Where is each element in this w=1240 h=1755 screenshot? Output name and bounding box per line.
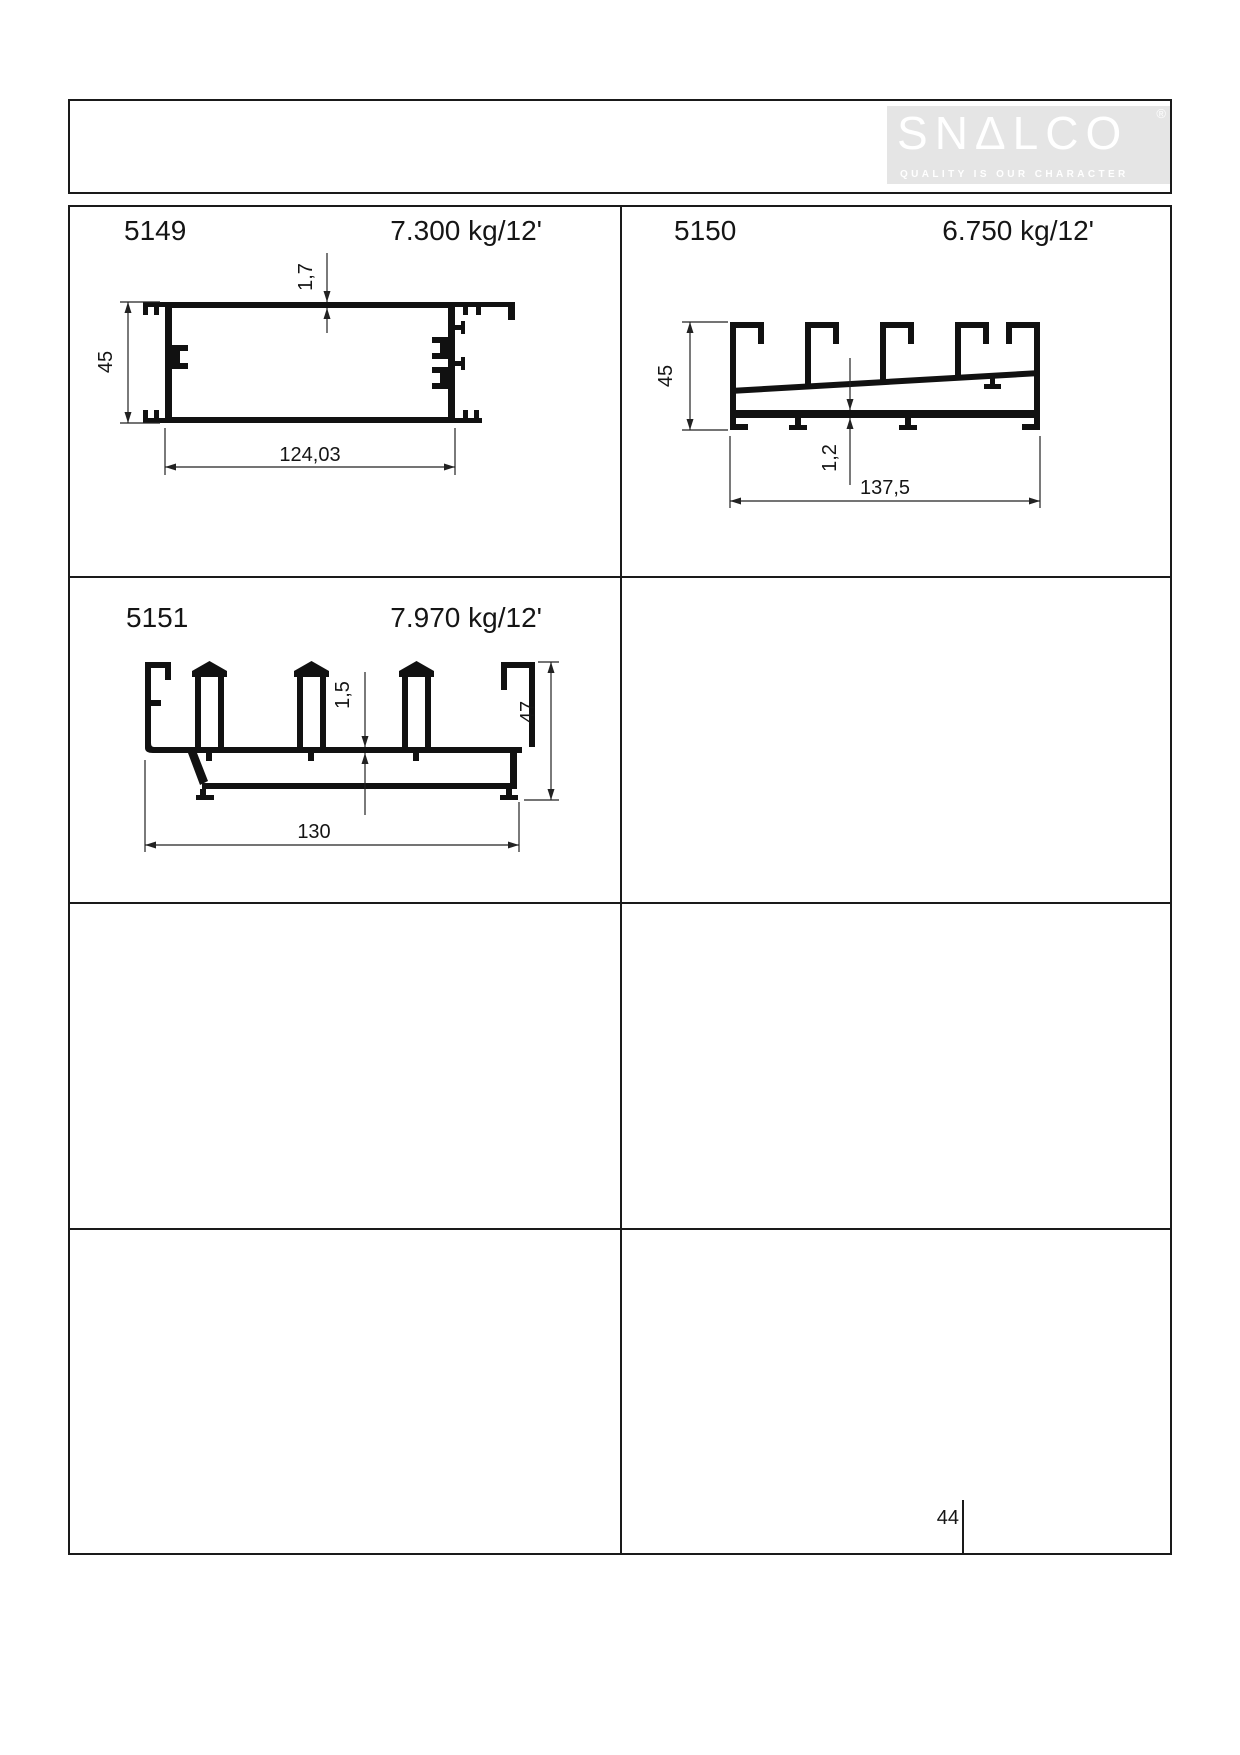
catalog-page: { "header": { "logo": { "text": "SNALCO"…: [0, 0, 1240, 1755]
brand-logo: SNΔLCO ® QUALITY IS OUR CHARACTER: [887, 106, 1170, 184]
page-number-tick: [962, 1500, 964, 1553]
logo-tagline: QUALITY IS OUR CHARACTER: [900, 169, 1129, 180]
profile-code: 5149: [124, 215, 186, 247]
profile-weight: 7.300 kg/12': [390, 215, 542, 247]
grid-row-divider: [70, 1228, 1170, 1230]
profile-drawing-5151: 1,5 47 130: [102, 600, 592, 890]
dim-thickness-label: 1,7: [295, 263, 317, 291]
dim-thickness-label: 1,5: [332, 681, 354, 709]
profile-drawing-5150: 45 1,2 137,5: [610, 250, 1160, 515]
profile-weight: 6.750 kg/12': [942, 215, 1094, 247]
header-box: SNΔLCO ® QUALITY IS OUR CHARACTER: [68, 99, 1172, 194]
dim-height-label: 45: [95, 351, 117, 373]
dim-width-label: 124,03: [279, 444, 340, 466]
registered-trademark-icon: ®: [1156, 106, 1166, 121]
dim-width-label: 137,5: [860, 477, 910, 499]
logo-text: SNΔLCO: [897, 107, 1128, 159]
dim-height-label: 45: [655, 365, 677, 387]
dim-height-label: 47: [517, 701, 539, 723]
profile-cell-5149-title: 5149 7.300 kg/12': [70, 215, 620, 247]
grid-row-divider: [70, 902, 1170, 904]
catalog-grid: 5149 7.300 kg/12': [68, 205, 1172, 1555]
profile-cell-5150-title: 5150 6.750 kg/12': [622, 215, 1172, 247]
profile-drawing-5149: 45 1,7 124,03: [80, 245, 560, 480]
dim-width-label: 130: [297, 821, 330, 843]
profile-cross-section: [730, 322, 1040, 430]
dim-thickness-label: 1,2: [819, 444, 841, 472]
grid-row-divider: [70, 576, 1170, 578]
profile-cross-section: [143, 302, 515, 423]
page-number: 44: [915, 1507, 959, 1530]
profile-code: 5150: [674, 215, 736, 247]
